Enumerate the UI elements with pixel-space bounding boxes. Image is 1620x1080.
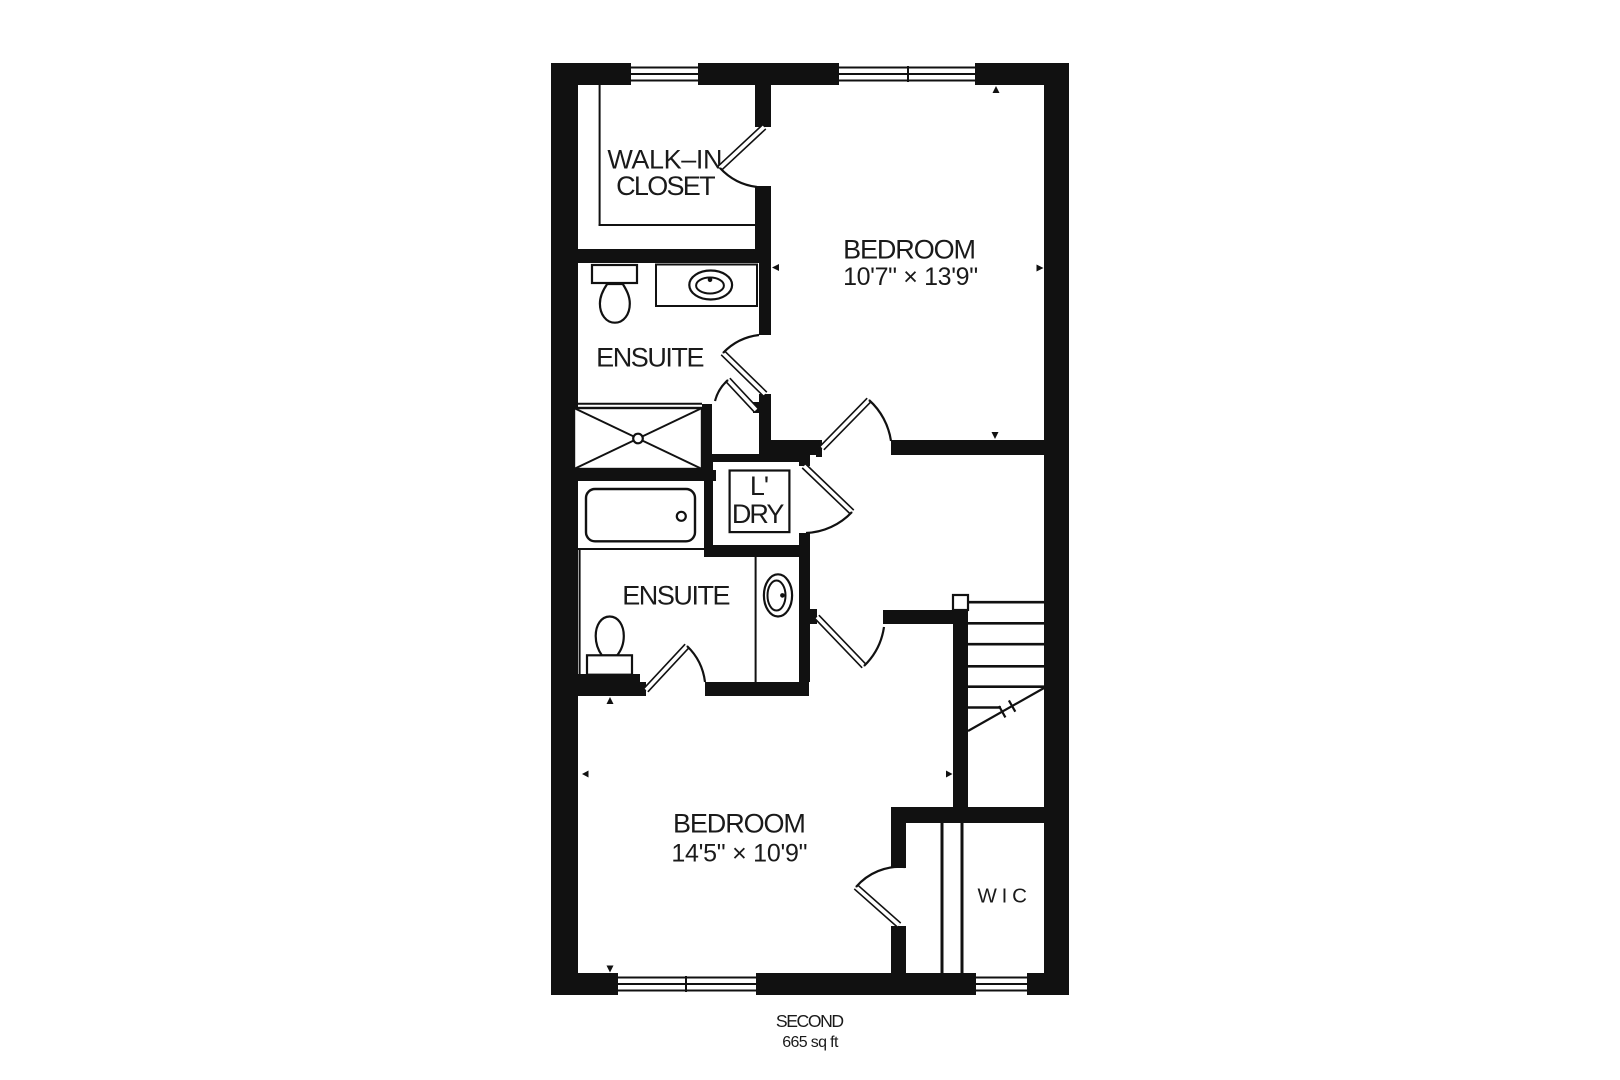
- svg-text:ENSUITE: ENSUITE: [622, 580, 729, 610]
- svg-text:L': L': [750, 471, 768, 501]
- svg-text:WALK–IN: WALK–IN: [607, 144, 722, 174]
- svg-text:CLOSET: CLOSET: [616, 171, 715, 201]
- svg-text:BEDROOM: BEDROOM: [843, 234, 975, 264]
- svg-text:WIC: WIC: [977, 884, 1031, 907]
- svg-text:10'7" × 13'9": 10'7" × 13'9": [843, 263, 978, 291]
- svg-text:14'5" × 10'9": 14'5" × 10'9": [671, 840, 807, 868]
- svg-text:DRY: DRY: [732, 499, 785, 529]
- svg-text:BEDROOM: BEDROOM: [673, 809, 805, 839]
- svg-text:SECOND: SECOND: [776, 1011, 844, 1031]
- svg-text:ENSUITE: ENSUITE: [596, 343, 703, 373]
- svg-text:665 sq ft: 665 sq ft: [782, 1034, 839, 1051]
